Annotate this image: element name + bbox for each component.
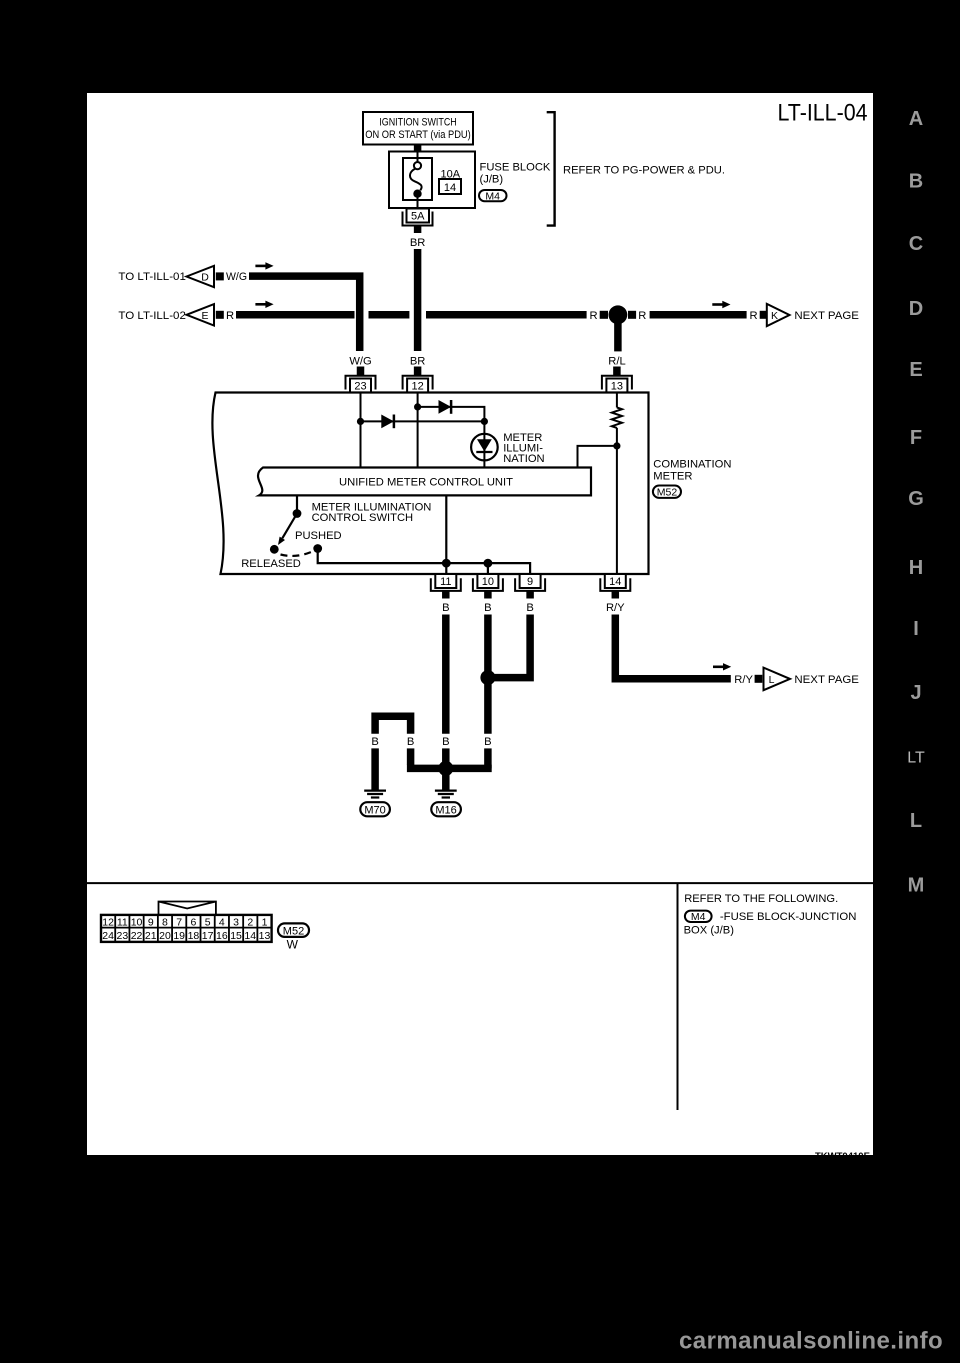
svg-text:R/Y: R/Y: [606, 602, 625, 614]
svg-text:15: 15: [230, 930, 242, 942]
svg-text:24: 24: [102, 930, 114, 942]
svg-text:carmanualsonline.info: carmanualsonline.info: [679, 1328, 943, 1355]
svg-text:14: 14: [244, 930, 256, 942]
svg-text:2: 2: [247, 917, 253, 929]
svg-text:14: 14: [609, 576, 621, 588]
svg-text:19: 19: [173, 930, 185, 942]
svg-text:M70: M70: [364, 804, 385, 816]
svg-text:NATION: NATION: [503, 453, 544, 465]
svg-text:11: 11: [117, 917, 128, 929]
svg-text:M4: M4: [691, 911, 706, 923]
svg-text:E: E: [201, 310, 208, 322]
svg-text:C: C: [909, 233, 923, 255]
svg-text:BOX (J/B): BOX (J/B): [684, 924, 735, 936]
svg-text:RELEASED: RELEASED: [241, 558, 301, 570]
svg-text:B: B: [371, 736, 378, 748]
svg-text:G: G: [908, 488, 924, 510]
svg-text:B: B: [909, 171, 923, 193]
svg-text:1: 1: [262, 917, 268, 929]
svg-text:M52: M52: [657, 487, 678, 499]
svg-text:12: 12: [102, 917, 114, 929]
svg-text:9: 9: [148, 917, 154, 929]
svg-text:METER: METER: [653, 470, 692, 482]
svg-text:B: B: [442, 736, 449, 748]
svg-text:REFER TO THE FOLLOWING.: REFER TO THE FOLLOWING.: [684, 893, 838, 905]
svg-text:COMBINATION: COMBINATION: [653, 459, 731, 471]
svg-text:L: L: [910, 810, 922, 832]
svg-text:K: K: [771, 310, 778, 322]
svg-text:M16: M16: [435, 804, 456, 816]
svg-text:11: 11: [440, 576, 451, 588]
svg-text:A: A: [909, 108, 923, 130]
svg-text:I: I: [913, 618, 919, 640]
svg-text:23: 23: [116, 930, 128, 942]
svg-text:LT-ILL-04: LT-ILL-04: [778, 100, 868, 127]
svg-text:13: 13: [611, 381, 623, 393]
svg-text:6: 6: [190, 917, 196, 929]
svg-text:NEXT PAGE: NEXT PAGE: [794, 674, 859, 686]
svg-text:R: R: [638, 310, 646, 322]
svg-text:W/G: W/G: [226, 271, 247, 283]
svg-text:M4: M4: [485, 190, 500, 202]
svg-text:22: 22: [131, 930, 143, 942]
svg-text:TO LT-ILL-01: TO LT-ILL-01: [118, 271, 185, 283]
svg-text:D: D: [201, 272, 209, 284]
svg-text:13: 13: [259, 930, 271, 942]
svg-text:ON OR START (via PDU): ON OR START (via PDU): [365, 129, 471, 141]
svg-text:16: 16: [216, 930, 228, 942]
svg-text:REFER TO PG-POWER & PDU.: REFER TO PG-POWER & PDU.: [563, 165, 725, 177]
svg-text:FUSE BLOCK: FUSE BLOCK: [480, 162, 551, 174]
svg-text:14: 14: [444, 182, 456, 194]
svg-text:J: J: [910, 682, 921, 704]
svg-text:10: 10: [482, 576, 494, 588]
svg-text:CONTROL SWITCH: CONTROL SWITCH: [312, 512, 414, 524]
svg-text:B: B: [484, 736, 491, 748]
svg-text:LT: LT: [907, 750, 925, 767]
svg-text:BR: BR: [410, 356, 426, 368]
svg-text:5: 5: [205, 917, 211, 929]
svg-text:3: 3: [233, 917, 239, 929]
svg-text:NEXT PAGE: NEXT PAGE: [794, 310, 859, 322]
svg-text:R: R: [749, 310, 757, 322]
svg-text:W: W: [287, 938, 299, 952]
svg-text:10: 10: [131, 917, 143, 929]
svg-text:R: R: [590, 310, 598, 322]
svg-text:L: L: [769, 674, 775, 686]
svg-text:-FUSE BLOCK-JUNCTION: -FUSE BLOCK-JUNCTION: [720, 911, 857, 923]
svg-text:F: F: [910, 427, 922, 449]
svg-text:PUSHED: PUSHED: [295, 530, 342, 542]
svg-text:B: B: [442, 602, 449, 614]
svg-text:TO LT-ILL-02: TO LT-ILL-02: [118, 310, 185, 322]
svg-text:BR: BR: [410, 237, 426, 249]
svg-text:B: B: [484, 602, 491, 614]
svg-text:5A: 5A: [411, 211, 425, 223]
svg-text:IGNITION SWITCH: IGNITION SWITCH: [379, 117, 457, 129]
svg-text:8: 8: [162, 917, 168, 929]
svg-text:4: 4: [219, 917, 225, 929]
svg-text:R/L: R/L: [608, 356, 625, 368]
svg-text:23: 23: [354, 381, 366, 393]
svg-text:W/G: W/G: [349, 356, 371, 368]
svg-text:E: E: [909, 359, 922, 381]
svg-text:M52: M52: [283, 925, 304, 937]
svg-text:M: M: [908, 875, 925, 897]
svg-text:12: 12: [411, 381, 423, 393]
svg-text:R/Y: R/Y: [734, 674, 753, 686]
svg-text:(J/B): (J/B): [480, 174, 504, 186]
svg-text:18: 18: [188, 930, 200, 942]
svg-text:7: 7: [176, 917, 182, 929]
svg-text:D: D: [909, 298, 923, 320]
svg-text:21: 21: [145, 930, 157, 942]
svg-text:9: 9: [527, 576, 533, 588]
svg-text:B: B: [407, 736, 414, 748]
svg-text:17: 17: [202, 930, 214, 942]
svg-text:UNIFIED METER CONTROL UNIT: UNIFIED METER CONTROL UNIT: [339, 477, 513, 489]
svg-text:20: 20: [159, 930, 171, 942]
svg-text:R: R: [226, 310, 234, 322]
svg-text:H: H: [909, 557, 923, 579]
svg-text:B: B: [526, 602, 533, 614]
